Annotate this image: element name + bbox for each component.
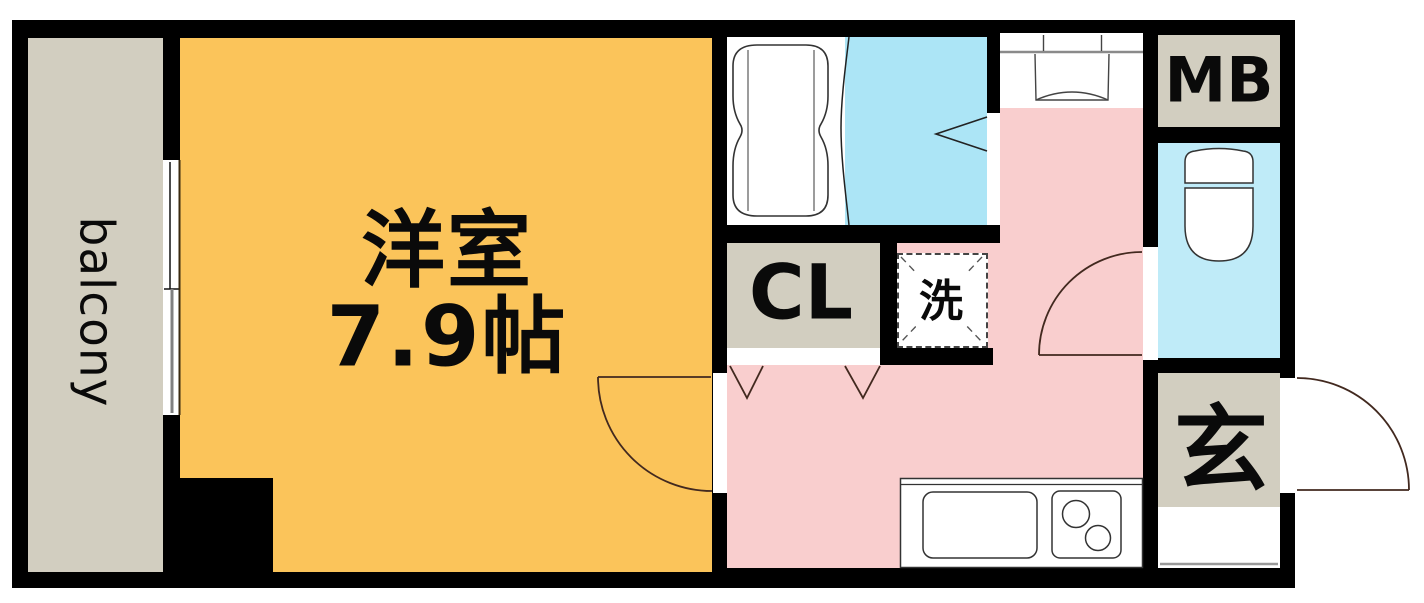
main-room-label: 洋室 7.9帖 bbox=[327, 208, 568, 379]
bath-floor bbox=[845, 37, 987, 225]
laundry-label: 洗 bbox=[916, 265, 966, 329]
meter-box-label: MB bbox=[1165, 44, 1274, 117]
toilet-door-opening bbox=[1143, 247, 1158, 360]
closet-label: CL bbox=[749, 248, 853, 337]
main-room-size: 7.9帖 bbox=[327, 294, 568, 380]
bathroom-area bbox=[727, 37, 845, 225]
wall-stub-closet bbox=[880, 243, 897, 365]
bath-door-opening bbox=[987, 113, 1000, 225]
hall-kitchen-floor-upper bbox=[1000, 108, 1143, 243]
floor-plan: balcony 洋室 7.9帖 CL 洗 MB 玄 bbox=[0, 0, 1424, 603]
wall-under-laundry bbox=[897, 348, 993, 365]
window-opening bbox=[163, 160, 180, 415]
front-door-opening bbox=[1280, 378, 1295, 493]
entrance-step bbox=[1158, 507, 1280, 568]
closet-door-track bbox=[727, 348, 880, 365]
room-door-opening bbox=[713, 373, 727, 493]
toilet-room-area bbox=[1158, 143, 1280, 358]
entrance-label: 玄 bbox=[1174, 374, 1268, 510]
structural-pillar bbox=[163, 478, 273, 572]
main-room-name: 洋室 bbox=[327, 208, 568, 294]
balcony-label: balcony bbox=[69, 217, 124, 408]
front-door-swing-icon bbox=[1297, 378, 1409, 490]
